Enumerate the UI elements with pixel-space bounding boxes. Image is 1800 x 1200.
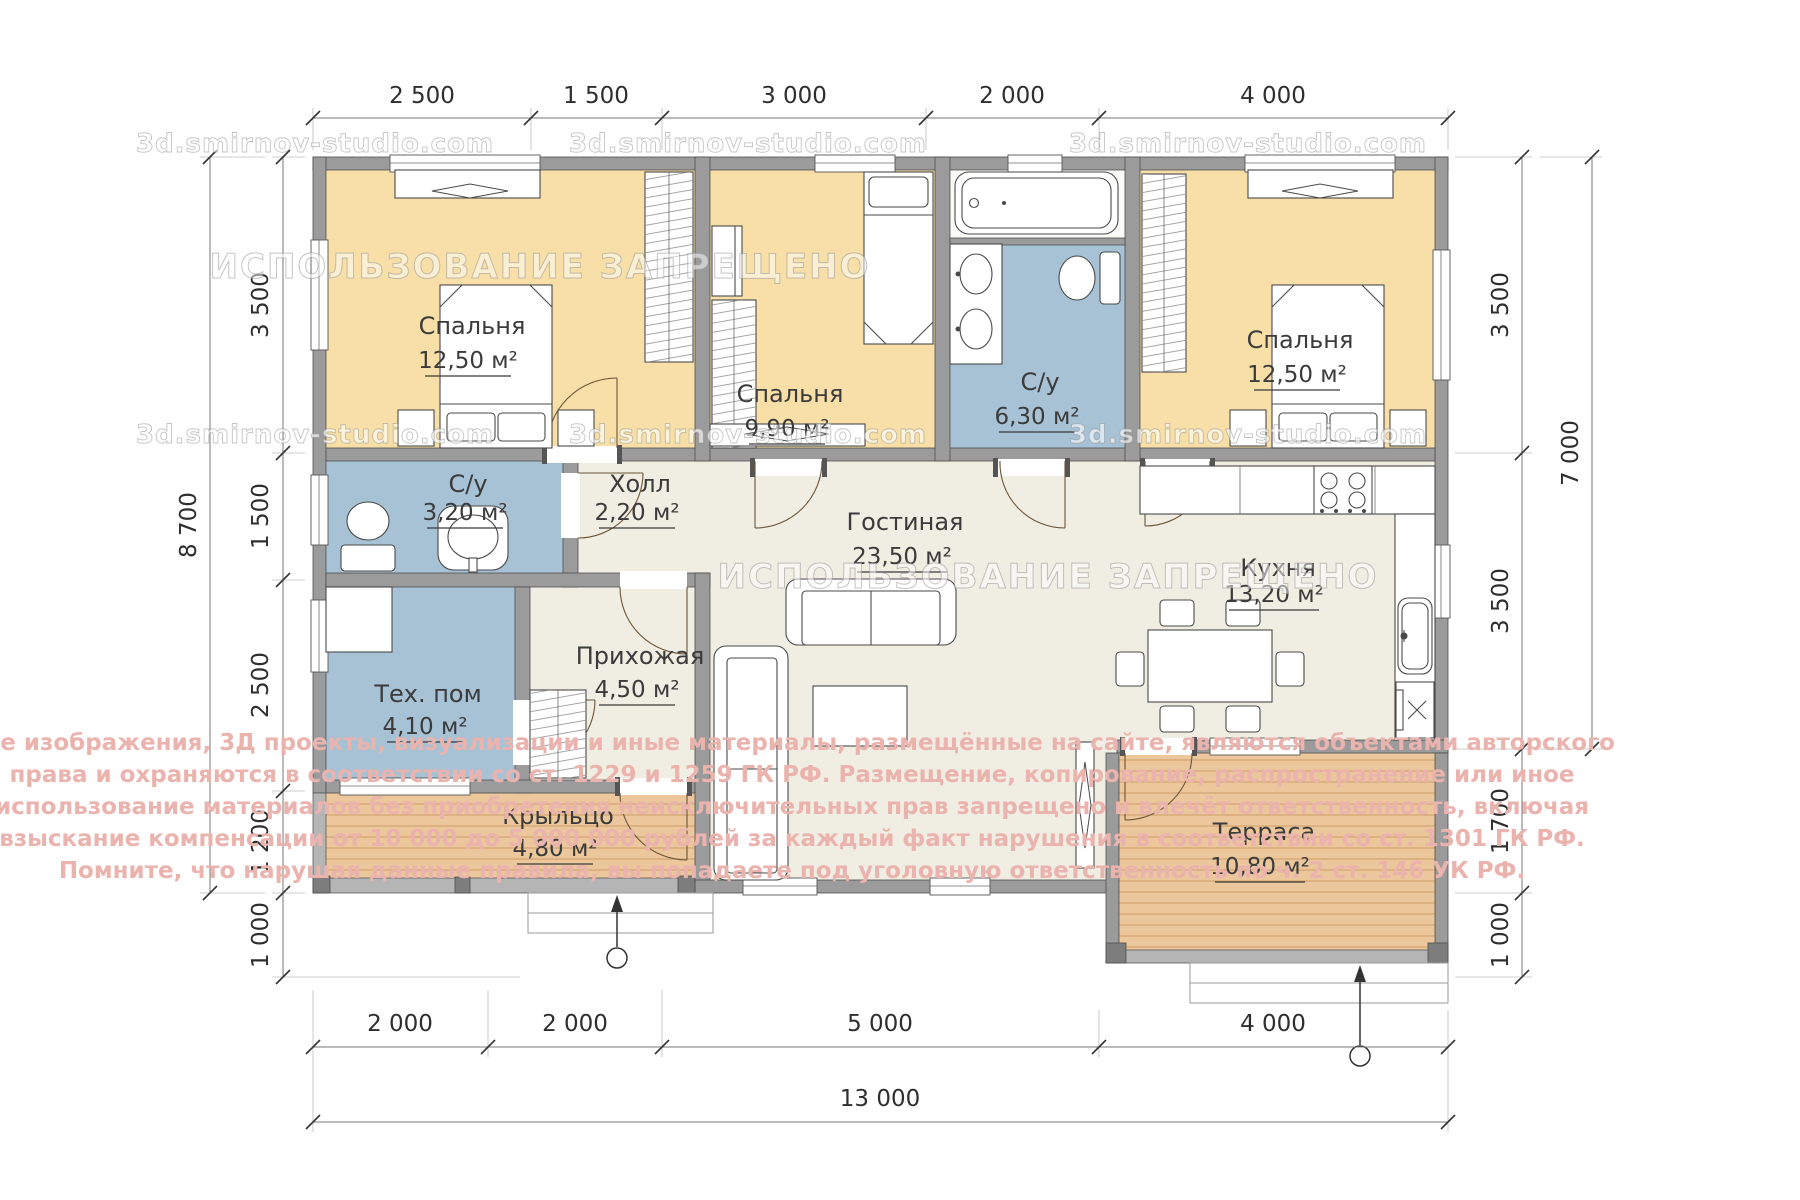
room-label: Гостиная bbox=[847, 508, 964, 536]
window-icon bbox=[1433, 250, 1450, 380]
room-label: Тех. пом bbox=[373, 680, 481, 708]
dim-label: 3 500 bbox=[1488, 568, 1514, 634]
dim-label: 2 000 bbox=[542, 1011, 608, 1037]
room-label: Спальня bbox=[1247, 326, 1354, 354]
stove-icon bbox=[1314, 466, 1372, 514]
dim-label: 2 000 bbox=[979, 83, 1045, 109]
dim-label: 4 000 bbox=[1240, 1011, 1306, 1037]
copyright-line: Помните, что нарушая данные правила, вы … bbox=[59, 858, 1525, 884]
chair-icon bbox=[1276, 652, 1304, 686]
wardrobe-icon bbox=[1142, 174, 1186, 372]
copyright-line: использование материалов без приобретени… bbox=[0, 794, 1589, 820]
usage-watermark: ИСПОЛЬЗОВАНИЕ ЗАПРЕЩЕНО bbox=[718, 557, 1379, 597]
tech-equipment bbox=[326, 587, 392, 652]
room-label: Спальня bbox=[419, 312, 526, 340]
chair-icon bbox=[1160, 706, 1194, 732]
wall-bed1-bed2 bbox=[695, 157, 710, 461]
dim-label: 4 000 bbox=[1240, 83, 1306, 109]
room-area: 12,50 м² bbox=[418, 348, 518, 374]
copyright-line: права и охраняются в соответствии со ст.… bbox=[10, 762, 1575, 788]
entry-arrow-icon bbox=[1350, 965, 1370, 1066]
dim-label: 3 000 bbox=[761, 83, 827, 109]
dim-label: 2 500 bbox=[248, 652, 274, 718]
terrace-post bbox=[1106, 943, 1126, 963]
room-area: 12,50 м² bbox=[1247, 362, 1347, 388]
terrace-steps bbox=[1190, 963, 1448, 1003]
wall-bath-bed3 bbox=[1125, 157, 1140, 461]
site-watermark: 3d.smirnov-studio.com bbox=[1069, 129, 1427, 159]
site-watermark: 3d.smirnov-studio.com bbox=[569, 420, 927, 450]
dim-label: 1 000 bbox=[1488, 902, 1514, 968]
dim-label: 3 500 bbox=[1488, 272, 1514, 338]
wall-bed2-bath bbox=[935, 157, 950, 461]
chair-icon bbox=[1160, 600, 1194, 626]
dim-label: 1 500 bbox=[563, 83, 629, 109]
room-area: 3,20 м² bbox=[422, 500, 507, 526]
tv-icon bbox=[1248, 170, 1393, 198]
chair-icon bbox=[1226, 706, 1260, 732]
room-label: С/у bbox=[1020, 368, 1059, 396]
dim-label: 1 000 bbox=[248, 902, 274, 968]
room-label: Холл bbox=[609, 470, 671, 498]
copyright-notice: Все изображения, 3Д проекты, визуализаци… bbox=[0, 730, 1615, 884]
dining-table-icon bbox=[1148, 630, 1272, 702]
site-watermark: 3d.smirnov-studio.com bbox=[136, 129, 494, 159]
porch-steps bbox=[528, 893, 713, 933]
terrace-south-rim bbox=[1106, 950, 1448, 963]
wall-east bbox=[1435, 157, 1448, 753]
room-label: Прихожая bbox=[576, 642, 705, 670]
floor-plan: Спальня 12,50 м² Спальня 9,90 м² С/у 6,3… bbox=[0, 0, 1800, 1200]
copyright-line: Все изображения, 3Д проекты, визуализаци… bbox=[0, 730, 1615, 756]
room-label: Спальня bbox=[737, 380, 844, 408]
dim-label: 1 500 bbox=[248, 483, 274, 549]
dim-label: 5 000 bbox=[847, 1011, 913, 1037]
dim-label: 2 500 bbox=[389, 83, 455, 109]
usage-watermark: ИСПОЛЬЗОВАНИЕ ЗАПРЕЩЕНО bbox=[210, 247, 871, 287]
site-watermark: 3d.smirnov-studio.com bbox=[136, 420, 494, 450]
dim-label: 8 700 bbox=[176, 492, 202, 558]
site-watermark: 3d.smirnov-studio.com bbox=[1069, 420, 1427, 450]
room-area: 6,30 м² bbox=[994, 404, 1079, 430]
single-bed-icon bbox=[864, 172, 933, 344]
copyright-line: взыскание компенсации от 10 000 до 5 000… bbox=[0, 826, 1585, 852]
site-watermark: 3d.smirnov-studio.com bbox=[569, 129, 927, 159]
dim-label: 7 000 bbox=[1558, 420, 1584, 486]
room-area: 2,20 м² bbox=[594, 500, 679, 526]
dim-label: 13 000 bbox=[840, 1086, 920, 1112]
dim-label: 2 000 bbox=[367, 1011, 433, 1037]
window-icon bbox=[1008, 155, 1062, 172]
double-sink-vanity-icon bbox=[950, 244, 1002, 364]
room-label: С/у bbox=[448, 470, 487, 498]
bathtub-icon bbox=[955, 172, 1118, 234]
terrace-post bbox=[1428, 943, 1448, 963]
room-area: 4,50 м² bbox=[594, 677, 679, 703]
window-icon bbox=[1433, 545, 1450, 618]
chair-icon bbox=[1116, 652, 1144, 686]
window-icon bbox=[311, 475, 328, 545]
tv-icon bbox=[395, 170, 540, 198]
entry-arrow-icon bbox=[607, 895, 627, 968]
kitchen-sink-icon bbox=[1398, 598, 1432, 674]
